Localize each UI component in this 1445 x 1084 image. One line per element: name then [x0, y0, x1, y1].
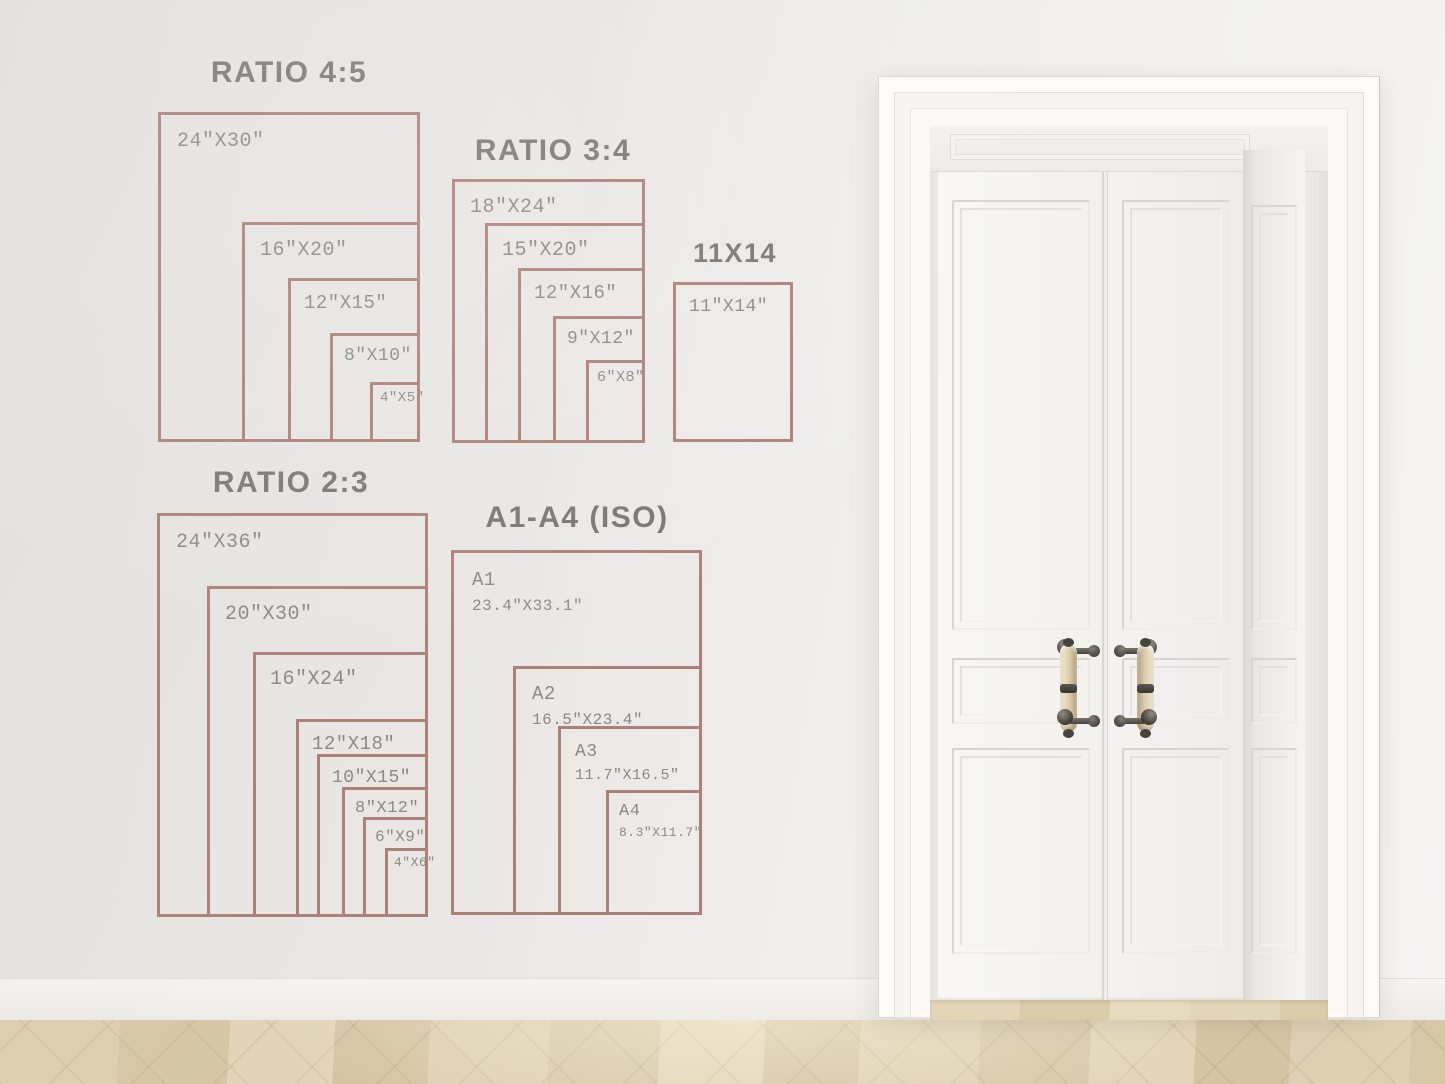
door-leaf-left	[938, 172, 1104, 1000]
handle-arm-icon	[1118, 718, 1146, 724]
door-panel-upper	[1122, 200, 1230, 630]
handle-arm-icon	[1068, 718, 1096, 724]
door-leaf-right	[1107, 172, 1243, 1000]
jamb-panel-upper	[1251, 205, 1297, 630]
room-scene: RATIO 4:524"X30"16"X20"12"X15"8"X10"4"X5…	[0, 0, 1445, 1084]
door-panel-lower	[1122, 748, 1230, 954]
doorway-floor	[930, 1000, 1328, 1020]
jamb-panel-lower	[1251, 748, 1297, 954]
door-handle-right	[1110, 634, 1156, 738]
door-handle-left	[1058, 634, 1104, 738]
door-panel-upper	[952, 200, 1090, 630]
doorway	[0, 0, 1445, 1084]
door-jamb-reveal	[1243, 150, 1305, 1008]
door-lintel-panel	[950, 134, 1250, 160]
door-panel-lower	[952, 748, 1090, 954]
jamb-panel-middle	[1251, 658, 1297, 724]
